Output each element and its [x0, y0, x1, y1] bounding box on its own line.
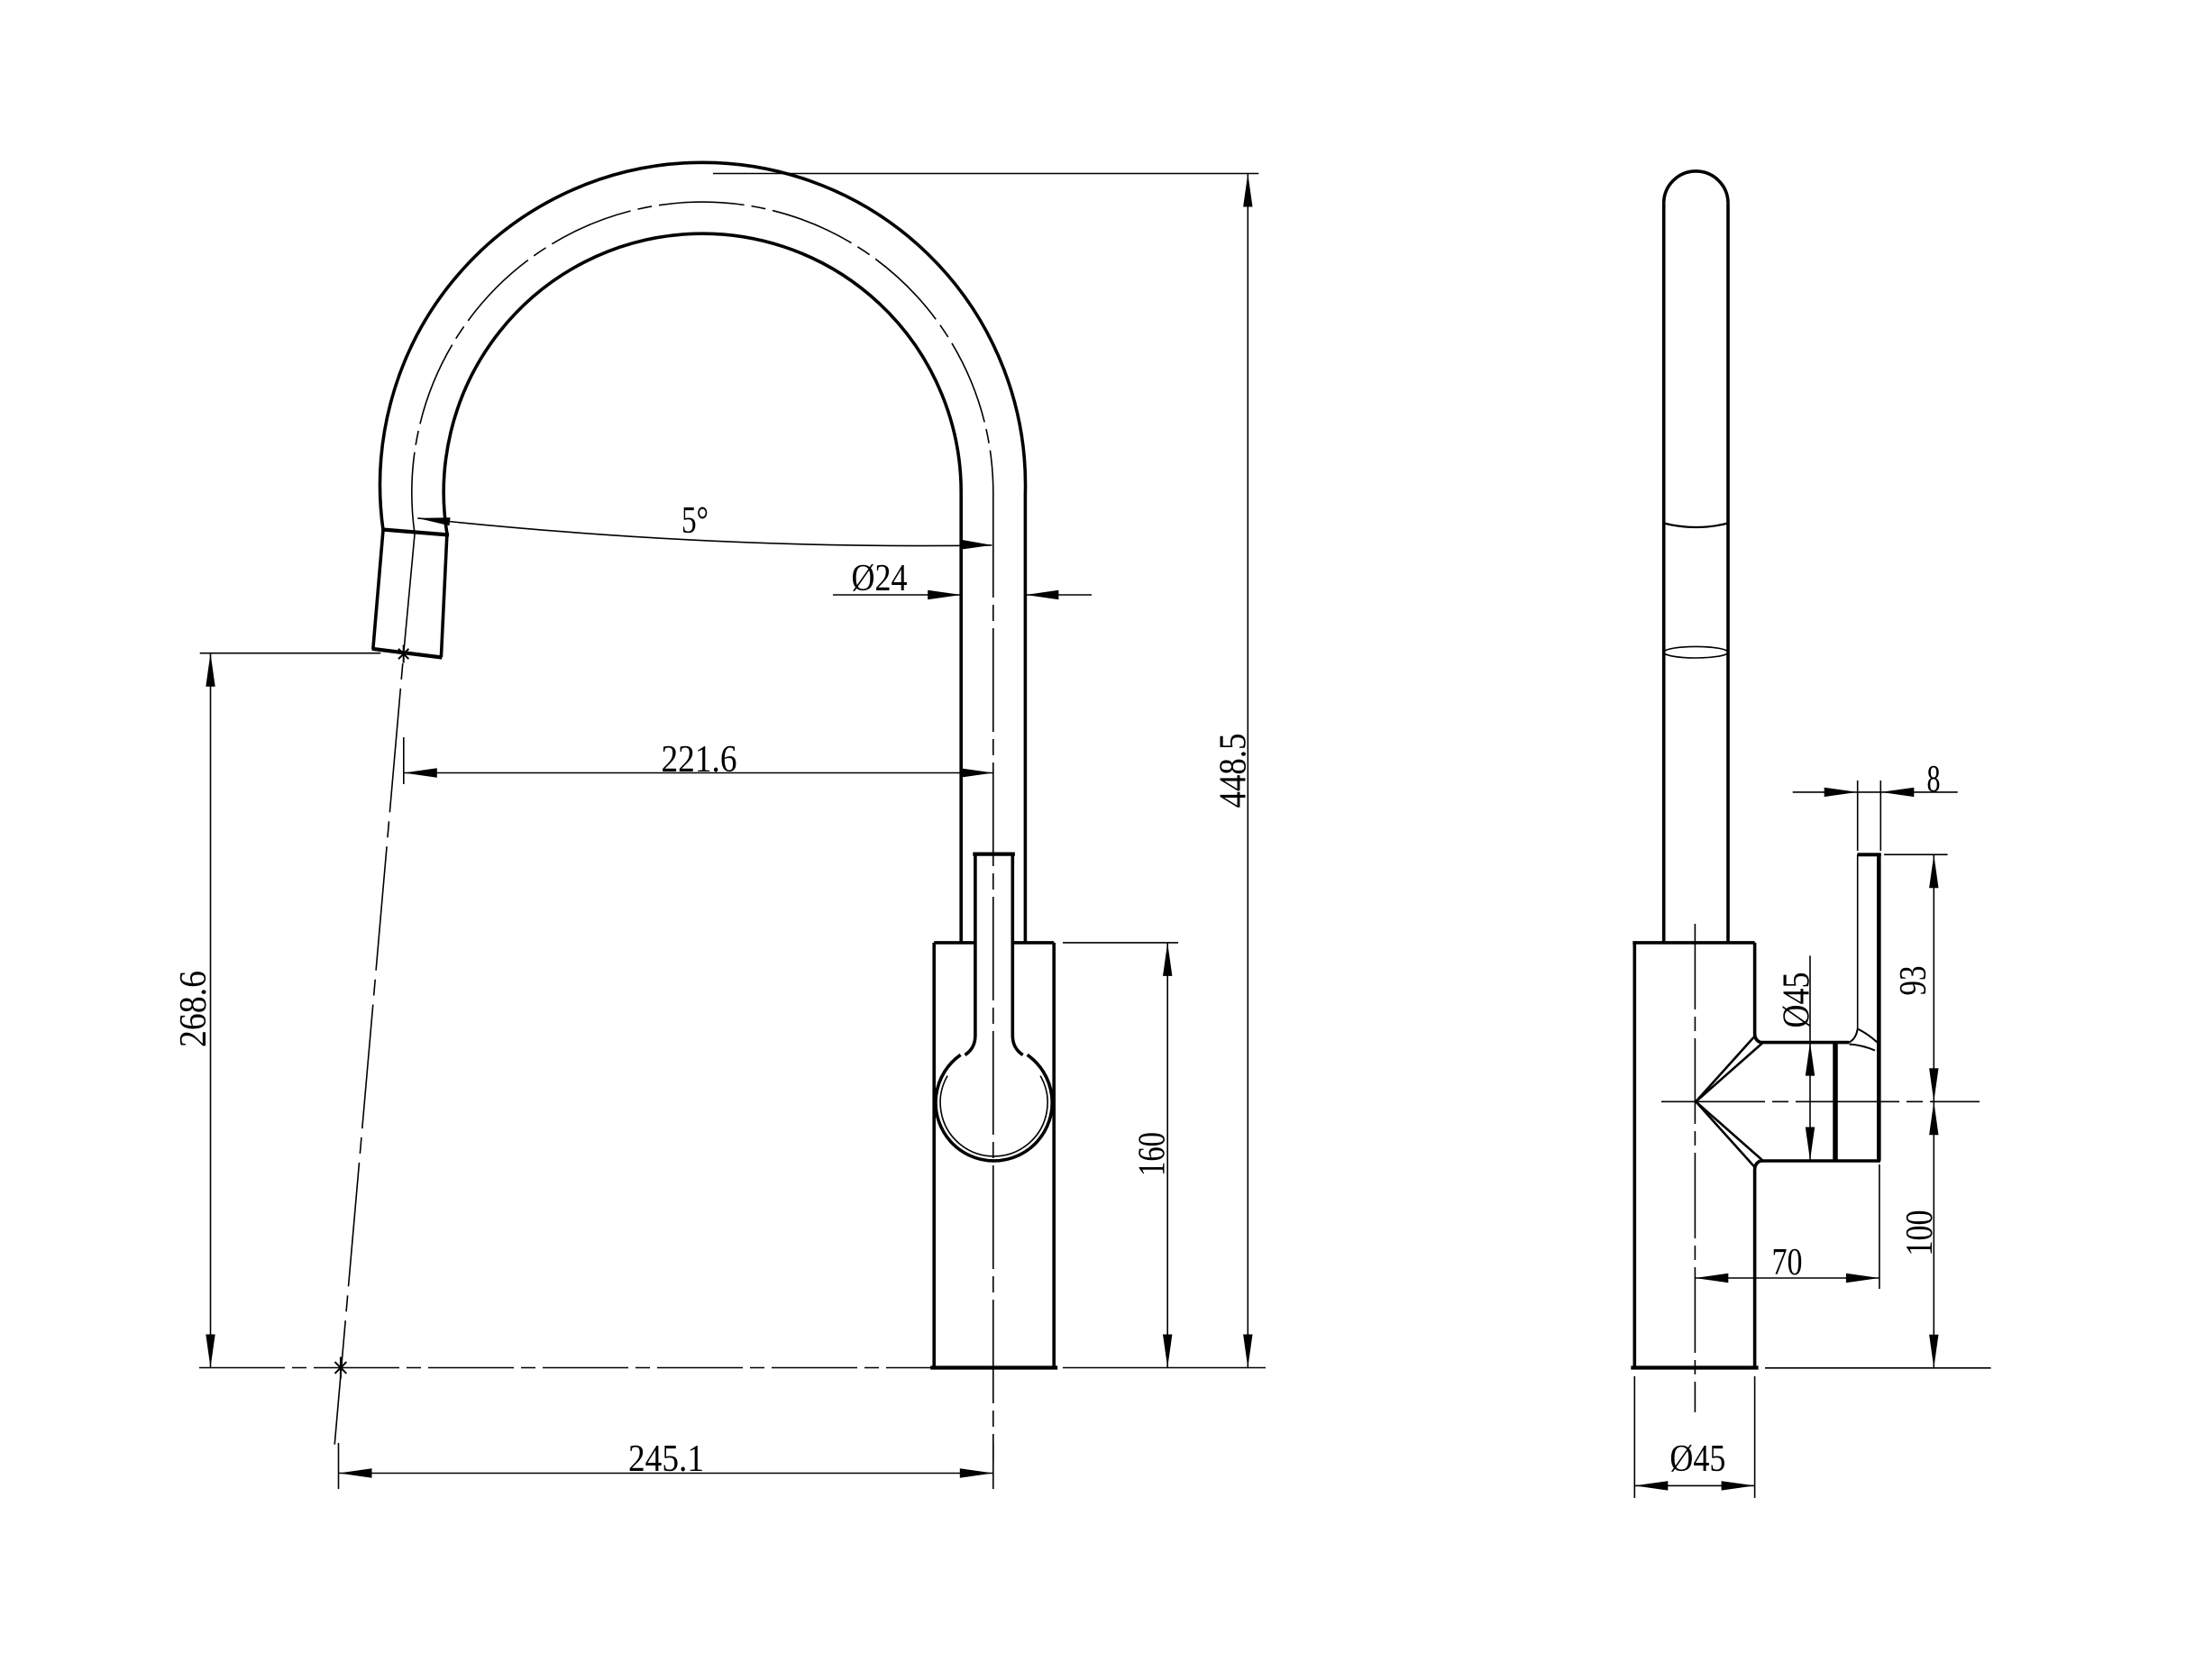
svg-text:70: 70	[1772, 1242, 1803, 1283]
svg-text:100: 100	[1899, 1210, 1941, 1256]
svg-text:268.6: 268.6	[173, 971, 215, 1047]
svg-text:160: 160	[1132, 1132, 1174, 1176]
svg-text:93: 93	[1893, 966, 1934, 996]
svg-text:Ø24: Ø24	[852, 558, 908, 599]
svg-text:8: 8	[1927, 759, 1941, 800]
svg-text:221.6: 221.6	[662, 739, 737, 781]
svg-text:5°: 5°	[681, 500, 709, 542]
svg-text:448.5: 448.5	[1213, 734, 1255, 808]
svg-text:Ø45: Ø45	[1777, 972, 1818, 1028]
svg-text:245.1: 245.1	[628, 1438, 704, 1480]
svg-text:Ø45: Ø45	[1669, 1438, 1725, 1480]
